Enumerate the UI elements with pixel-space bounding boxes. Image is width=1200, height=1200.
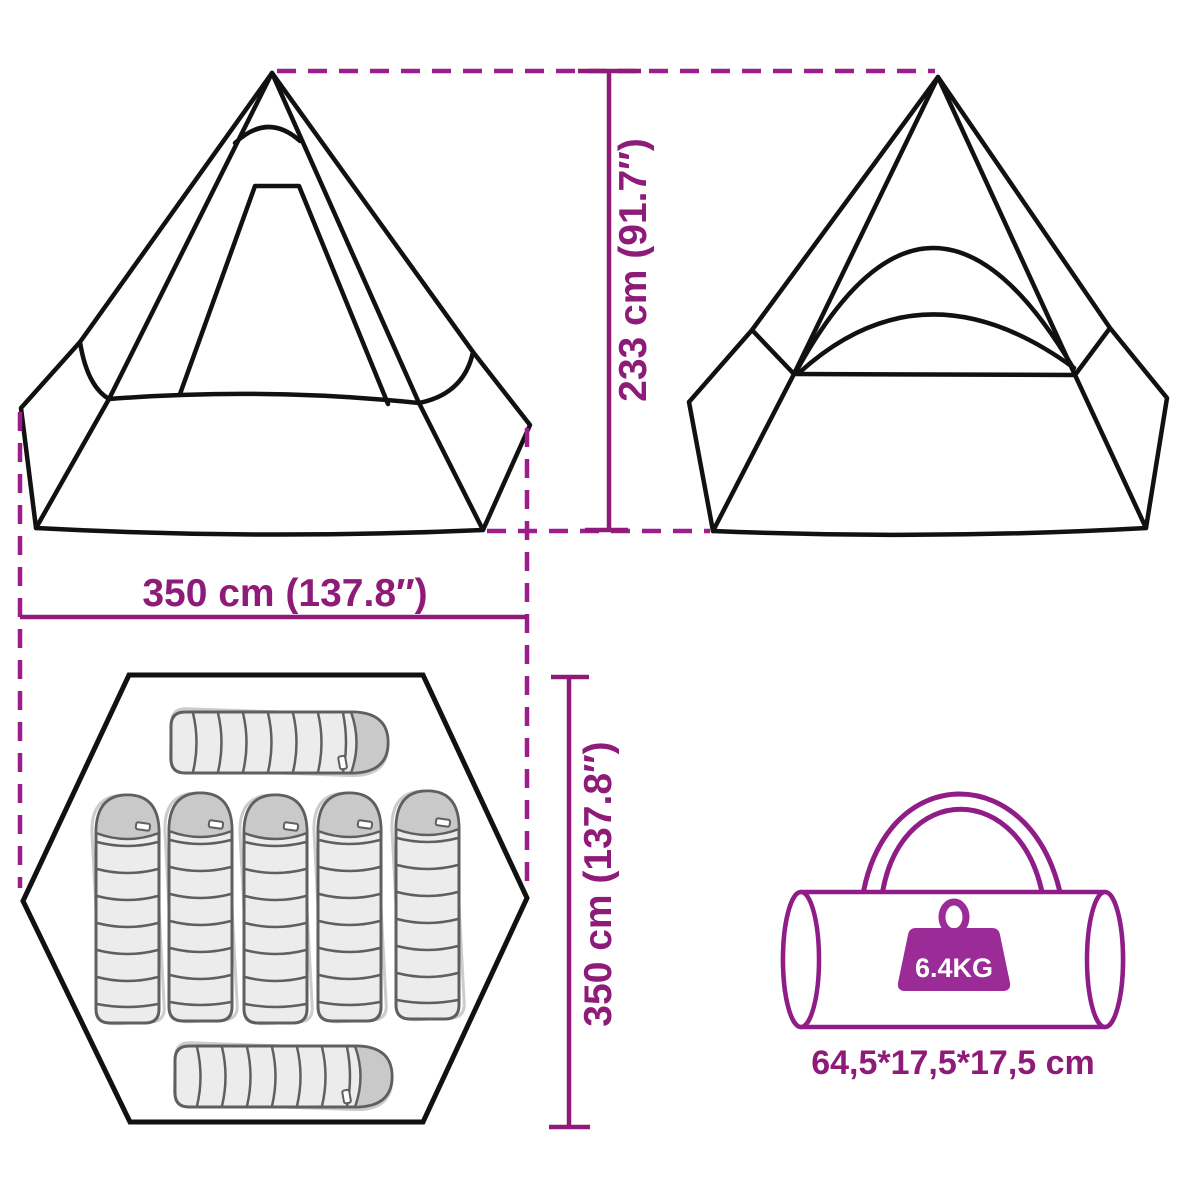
tent-back-silhouette: [689, 77, 1167, 535]
tent-front-base-curve: [109, 394, 419, 403]
tent-back-view: [689, 77, 1167, 535]
tent-front-pole-right: [272, 73, 419, 403]
tent-back-crease-left-lower: [713, 374, 794, 531]
height-dimension-label: 233 cm (91.7″): [612, 138, 655, 402]
tent-front-side-curve-right: [419, 352, 473, 403]
tent-front-pole-left: [109, 73, 272, 399]
bag-handle-inner: [881, 809, 1044, 903]
sleeping-bag-4: [312, 792, 387, 1023]
tent-front-crease-right: [419, 403, 483, 530]
sleeping-bag-bottom: [174, 1042, 393, 1111]
width-dimension-label: 350 cm (137.8″): [142, 572, 427, 615]
tent-front-view: [21, 73, 530, 535]
bag-end-cap-right: [1087, 892, 1123, 1027]
bag-size-label: 64,5*17,5*17,5 cm: [811, 1044, 1095, 1082]
tent-front-door: [180, 186, 388, 404]
carry-bag-view: 6.4KG 64,5*17,5*17,5 cm: [783, 794, 1123, 1082]
bag-end-cap-left: [783, 892, 819, 1027]
tent-front-crease-left: [36, 399, 109, 528]
tent-front-silhouette: [21, 73, 530, 535]
tent-back-crease-left: [752, 330, 794, 374]
duffel-carry-bag-icon: [783, 794, 1123, 1027]
depth-dimension-label: 350 cm (137.8″): [577, 741, 620, 1026]
tent-dimension-diagram: 233 cm (91.7″) 350 cm (137.8″) 350 cm (1…: [0, 0, 1200, 1200]
tent-front-side-curve-left: [80, 342, 109, 399]
sleeping-bag-top: [170, 708, 389, 777]
tent-back-crease-right: [1075, 328, 1110, 375]
tent-back-crease-right-lower: [1075, 375, 1146, 528]
sleeping-bag-2: [163, 792, 238, 1023]
tent-back-dome-arc-lower: [800, 314, 1074, 372]
sleeping-bag-1: [90, 794, 165, 1025]
floor-plan: [23, 675, 527, 1122]
diagram-canvas: 233 cm (91.7″) 350 cm (137.8″) 350 cm (1…: [0, 0, 1200, 1200]
sleeping-bag-3: [238, 794, 313, 1025]
sleeping-bag-5: [390, 790, 465, 1021]
weight-label: 6.4KG: [915, 953, 993, 983]
tent-back-base-line: [794, 374, 1075, 375]
tent-back-dome-arc-upper: [797, 248, 1072, 370]
